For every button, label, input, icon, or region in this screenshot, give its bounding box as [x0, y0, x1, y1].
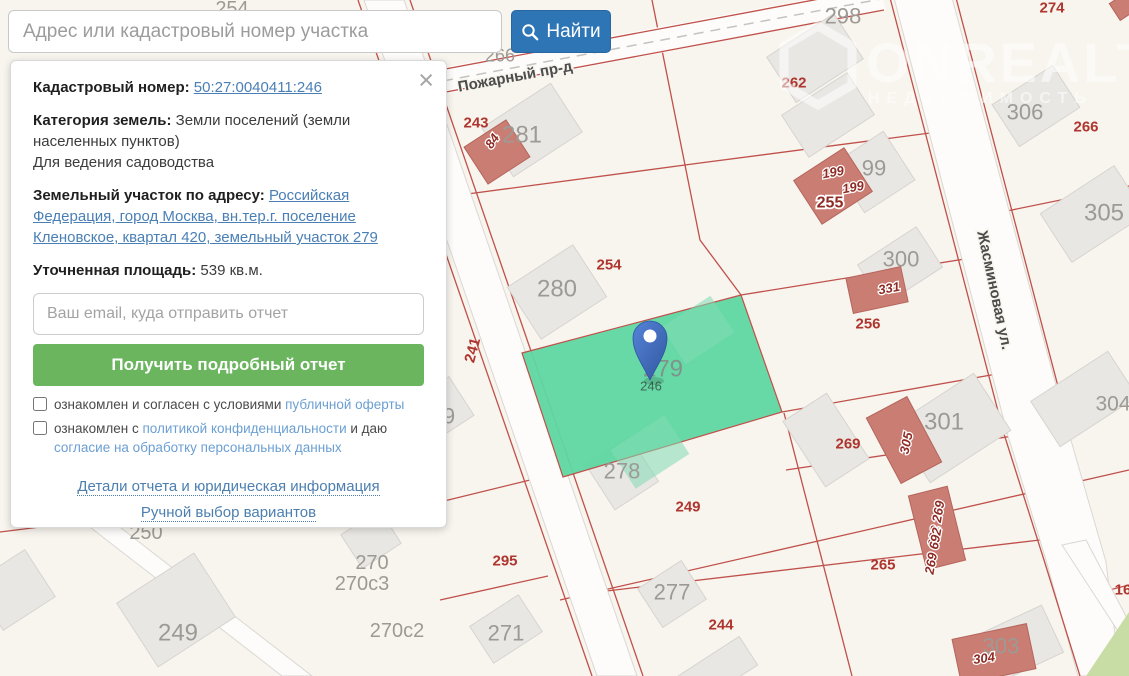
manual-selection-link[interactable]: Ручной выбор вариантов	[141, 504, 316, 522]
search-button-label: Найти	[546, 21, 600, 43]
map-number-label: 300	[883, 247, 920, 272]
land-category-label: Категория земель:	[33, 112, 171, 129]
area-label: Уточненная площадь:	[33, 262, 196, 279]
map-number-label: 304	[1095, 392, 1129, 415]
offer-consent-checkbox[interactable]	[33, 397, 47, 411]
map-number-label: 249	[158, 619, 198, 646]
search-input[interactable]	[8, 10, 502, 53]
get-report-button[interactable]: Получить подробный отчет	[33, 344, 424, 386]
map-number-label: 270	[355, 552, 388, 574]
map-number-label: 255	[817, 195, 844, 212]
area-row: Уточненная площадь: 539 кв.м.	[33, 260, 424, 281]
parcel-info-panel: × Кадастровый номер: 50:27:0040411:246 К…	[10, 60, 447, 528]
public-offer-link[interactable]: публичной оферты	[285, 397, 404, 412]
map-number-label: 278	[604, 459, 641, 484]
privacy-consent-text: ознакомлен с политикой конфиденциальност…	[54, 419, 424, 458]
map-number-label: 244	[708, 616, 734, 633]
map-number-label: 301	[924, 408, 964, 435]
map-number-label: 295	[492, 552, 517, 569]
close-icon[interactable]: ×	[418, 67, 434, 94]
map-number-label: 298	[825, 4, 862, 29]
map-number-label: 99	[862, 156, 886, 181]
cadastral-number-row: Кадастровый номер: 50:27:0040411:246	[33, 77, 424, 98]
address-label: Земельный участок по адресу:	[33, 187, 265, 204]
map-number-label: 265	[870, 556, 895, 573]
map-number-label: 280	[537, 275, 577, 302]
search-button[interactable]: Найти	[511, 10, 611, 53]
personal-data-consent-link[interactable]: согласие на обработку персональных данны…	[54, 440, 342, 455]
watermark-title: ONREALT	[866, 31, 1129, 94]
cadastral-number-link[interactable]: 50:27:0040411:246	[194, 79, 322, 96]
map-number-label: 270с3	[335, 573, 390, 595]
map-number-label: 270с2	[370, 620, 425, 642]
email-field[interactable]	[33, 293, 424, 335]
address-row: Земельный участок по адресу: Российская …	[33, 185, 424, 248]
map-number-label: 254	[596, 256, 622, 273]
map-number-label: 305	[1084, 199, 1124, 226]
map-number-label: 243	[463, 114, 488, 131]
privacy-policy-link[interactable]: политикой конфиденциальности	[142, 421, 346, 436]
map-number-label: 271	[488, 621, 525, 646]
privacy-consent-checkbox[interactable]	[33, 421, 47, 435]
search-icon	[521, 23, 539, 41]
app-window: Пожарный пр-дЖасминовая ул.2542662982819…	[0, 0, 1129, 676]
offer-consent-row: ознакомлен и согласен с условиями публич…	[33, 395, 424, 415]
map-number-label: 249	[675, 498, 700, 515]
land-category-row: Категория земель: Земли поселений (земли…	[33, 110, 424, 173]
area-value: 539 кв.м.	[200, 262, 262, 279]
privacy-consent-row: ознакомлен с политикой конфиденциальност…	[33, 419, 424, 458]
map-number-label: 304	[972, 649, 996, 667]
cadastral-number-label: Кадастровый номер:	[33, 79, 190, 96]
map-number-label: 256	[855, 315, 880, 332]
map-number-label: 274	[1039, 0, 1065, 16]
map-number-label: 269	[835, 435, 860, 452]
offer-consent-text: ознакомлен и согласен с условиями публич…	[54, 395, 404, 415]
map-number-label: 16	[1115, 581, 1129, 598]
report-details-link[interactable]: Детали отчета и юридическая информация	[77, 478, 379, 496]
panel-footer-links: Детали отчета и юридическая информация Р…	[33, 474, 424, 527]
map-number-label: 266	[1073, 118, 1098, 135]
land-use-value: Для ведения садоводства	[33, 152, 424, 173]
map-number-label: 277	[654, 580, 691, 605]
watermark-subtitle: НЕДВИЖИМОСТЬ	[868, 90, 1093, 107]
map-number-label: 281	[502, 121, 542, 148]
